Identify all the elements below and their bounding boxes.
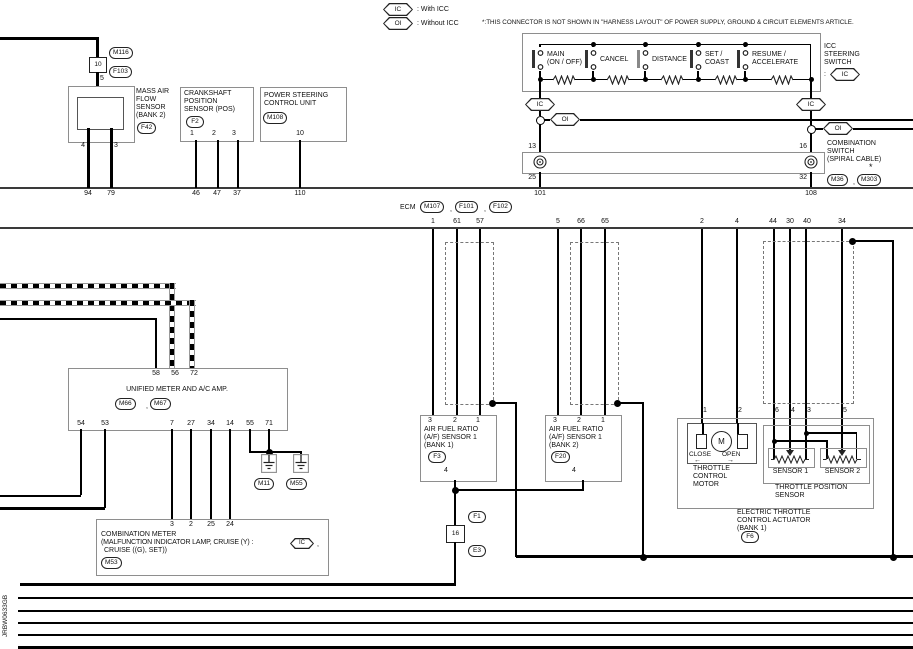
junction-dot	[743, 42, 748, 47]
connector-id: M11	[254, 478, 274, 490]
wire	[810, 44, 812, 80]
ecm-pin-number: 1	[424, 218, 442, 226]
wire	[249, 429, 251, 452]
wiper-arrow-icon	[786, 450, 794, 456]
legend-note: *:THIS CONNECTOR IS NOT SHOWN IN "HARNES…	[482, 19, 854, 27]
ecm-pin-number: 30	[781, 218, 799, 226]
can-line	[0, 300, 196, 306]
component-label: CRANKSHAFT	[184, 90, 231, 98]
icc-switch-title: STEERING	[824, 51, 860, 59]
wire	[0, 37, 98, 40]
pin-number: 71	[260, 420, 278, 428]
component-label: COMBINATION METER	[101, 531, 176, 539]
ecm-pin-number: 37	[228, 190, 246, 198]
connector-id: F6	[741, 531, 759, 543]
wire	[195, 140, 197, 188]
connector-id: F101	[455, 201, 478, 213]
comma: ,	[853, 179, 855, 187]
comma: ,	[146, 403, 148, 411]
comma: ,	[484, 206, 486, 214]
component-label: SENSOR	[136, 104, 166, 112]
wire	[557, 229, 559, 415]
pin-number: 2	[731, 407, 749, 415]
can-line	[169, 283, 175, 368]
wire	[810, 80, 813, 98]
wire	[0, 507, 105, 509]
component-label: POSITION	[184, 98, 217, 106]
component-label: MASS AIR	[136, 88, 169, 96]
bus-line	[18, 646, 913, 649]
component-label: (BANK 2)	[136, 112, 166, 120]
component-label: CONTROL UNIT	[264, 100, 316, 108]
component-label: MOTOR	[693, 481, 719, 489]
sensor2-label: SENSOR 2	[820, 468, 865, 476]
wire	[210, 429, 212, 519]
wire	[515, 402, 518, 558]
switch-label: COAST	[705, 59, 729, 67]
resistor-icon	[553, 75, 575, 85]
junction-dot	[696, 42, 701, 47]
asterisk-mark: *	[869, 163, 873, 171]
bus-line	[18, 622, 913, 625]
wire	[229, 429, 231, 519]
legend-ic-text: : With ICC	[417, 6, 449, 14]
component-label: (BANK 1)	[424, 442, 454, 450]
wire	[87, 128, 90, 188]
switch-icon	[736, 47, 752, 71]
connector-id: M303	[857, 174, 881, 186]
component-label: CRUISE ((G), SET))	[104, 547, 167, 555]
junction-dot	[452, 487, 459, 494]
switch-icon	[531, 47, 547, 71]
component-label: THROTTLE POSITION	[775, 484, 847, 492]
junction-dot	[489, 400, 496, 407]
wire	[155, 318, 157, 368]
component-label: AIR FUEL RATIO	[424, 426, 478, 434]
junction-dot	[591, 42, 596, 47]
junction-dot	[643, 42, 648, 47]
wire	[539, 124, 542, 153]
can-line	[189, 300, 195, 368]
oi-connector-icon: OI	[383, 17, 413, 30]
pin-number: 24	[221, 521, 239, 529]
wiper-arrow-icon	[838, 450, 846, 456]
pin-number: 3	[800, 407, 818, 415]
oi-connector-icon: OI	[550, 113, 580, 126]
connector-id: E3	[468, 545, 486, 557]
motor-brush	[737, 434, 748, 449]
junction-dot	[890, 554, 897, 561]
ecm-pin-number: 110	[291, 190, 309, 198]
can-line	[0, 283, 176, 289]
wire	[810, 172, 813, 188]
ic-connector-icon: IC	[525, 98, 555, 111]
bus-line	[18, 634, 913, 637]
switch-label: SET /	[705, 51, 722, 59]
wire	[217, 140, 219, 188]
junction-dot	[772, 439, 777, 444]
ecm-pin-number: 65	[596, 218, 614, 226]
maf-inner-box	[77, 97, 124, 130]
pin-number: 3	[114, 142, 118, 150]
pin-number: 2	[205, 130, 223, 138]
pin-number: 1	[594, 417, 612, 425]
inline-connector-box: 16	[446, 525, 465, 543]
wire	[701, 229, 703, 423]
motor-brush	[696, 434, 707, 449]
wire	[96, 72, 99, 86]
pin-number: 5	[100, 75, 104, 83]
wire	[516, 555, 913, 558]
icc-switch-title-sep: :	[824, 71, 826, 79]
arrow-right-icon: →	[727, 457, 734, 465]
component-label: SENSOR (POS)	[184, 106, 235, 114]
wire	[815, 128, 823, 130]
pin-number: 2	[182, 521, 200, 529]
pin-number: 27	[182, 420, 200, 428]
bus-line	[18, 597, 913, 600]
ecm-top-line	[0, 187, 913, 189]
connector-id: F20	[551, 451, 570, 463]
wire	[269, 451, 302, 453]
potentiometer-icon	[771, 455, 809, 464]
component-label: COMBINATION	[827, 140, 876, 148]
wire	[852, 240, 893, 243]
switch-label: MAIN	[547, 51, 565, 59]
wire	[642, 402, 645, 558]
pin-number: 7	[163, 420, 181, 428]
wire	[80, 429, 82, 495]
pin-number: 53	[96, 420, 114, 428]
connector-id: M55	[286, 478, 307, 490]
switch-label: RESUME /	[752, 51, 786, 59]
wire	[617, 402, 644, 405]
wire	[96, 37, 99, 58]
component-label: POWER STEERING	[264, 92, 328, 100]
icc-switch-title: SWITCH	[824, 59, 852, 67]
pin-number: 2	[570, 417, 588, 425]
component-label: CONTROL ACTUATOR	[737, 517, 810, 525]
pin-number: 4	[77, 142, 85, 150]
ic-connector-icon: IC	[830, 68, 860, 81]
icc-switch-title: ICC	[824, 43, 836, 51]
switch-icon	[584, 47, 600, 71]
ecm-pin-number: 2	[693, 218, 711, 226]
component-label: (A/F) SENSOR 1	[549, 434, 602, 442]
ic-connector-icon: IC	[796, 98, 826, 111]
pin-number: 4	[572, 467, 576, 475]
connector-id: F3	[428, 451, 446, 463]
connector-id: M66	[115, 398, 136, 410]
switch-icon	[689, 47, 705, 71]
ecm-pin-number: 57	[471, 218, 489, 226]
pin-number: 1	[183, 130, 201, 138]
pin-number: 32	[795, 174, 807, 182]
component-label: FLOW	[136, 96, 156, 104]
component-label: SWITCH	[827, 148, 855, 156]
wire	[455, 489, 584, 492]
wire	[539, 80, 542, 98]
wire	[0, 495, 81, 497]
connector-id: M53	[101, 557, 122, 569]
connector-id: F102	[489, 201, 512, 213]
pin-number: 34	[202, 420, 220, 428]
spiral-cable-icon	[804, 155, 818, 169]
junction-dot	[804, 431, 809, 436]
pin-number: 58	[147, 370, 165, 378]
wire	[432, 229, 434, 415]
potentiometer-icon	[823, 455, 861, 464]
component-label: (SPIRAL CABLE)	[827, 156, 881, 164]
ground-icon	[293, 454, 309, 473]
connector-id: M107	[420, 201, 444, 213]
connector-id: M36	[827, 174, 848, 186]
pin-number: 16	[795, 143, 807, 151]
pin-number: 5	[836, 407, 854, 415]
component-label: AIR FUEL RATIO	[549, 426, 603, 434]
comma: ,	[450, 206, 452, 214]
component-label: THROTTLE	[693, 465, 730, 473]
ecm-pin-number: 79	[102, 190, 120, 198]
resistor-icon	[607, 75, 629, 85]
shield-box	[570, 242, 619, 405]
spiral-cable-box	[522, 152, 825, 174]
connector-id: F42	[137, 122, 156, 134]
wire	[892, 240, 895, 557]
component-label: ELECTRIC THROTTLE	[737, 509, 810, 517]
wire	[171, 429, 173, 519]
arrow-left-icon: ←	[694, 457, 701, 465]
junction-dot	[640, 554, 647, 561]
wire	[853, 128, 913, 130]
wire	[104, 429, 106, 508]
ecm-pin-number: 66	[572, 218, 590, 226]
pin-number: 3	[546, 417, 564, 425]
wire	[0, 318, 157, 320]
junction-dot	[643, 77, 648, 82]
wire	[110, 128, 113, 188]
ecm-pin-number: 101	[531, 190, 549, 198]
drawing-code: JRBW0633GB	[2, 582, 10, 649]
ecm-pin-number: 94	[79, 190, 97, 198]
splice-node	[807, 125, 816, 134]
ecm-pin-number: 40	[798, 218, 816, 226]
ground-icon	[261, 454, 277, 473]
ecm-pin-number: 4	[728, 218, 746, 226]
wire	[492, 402, 517, 405]
component-label: CONTROL	[693, 473, 727, 481]
spiral-cable-icon	[533, 155, 547, 169]
wire	[454, 542, 457, 584]
pin-number: 2	[446, 417, 464, 425]
wire	[810, 111, 813, 125]
shield-box	[445, 242, 494, 405]
wire	[580, 119, 913, 121]
resistor-icon	[661, 75, 683, 85]
switch-label: DISTANCE	[652, 56, 687, 64]
resistor-icon	[771, 75, 793, 85]
component-label: SENSOR	[775, 492, 805, 500]
wire	[20, 583, 456, 586]
sensor1-label: SENSOR 1	[768, 468, 813, 476]
resistor-icon	[715, 75, 737, 85]
ecm-label: ECM	[400, 204, 416, 212]
connector-id: M116	[109, 47, 133, 59]
switch-label: CANCEL	[600, 56, 628, 64]
bus-line	[18, 610, 913, 613]
wire	[299, 140, 301, 188]
wiring-diagram: IC : With ICC OI : Without ICC *:THIS CO…	[0, 0, 913, 649]
shield-box	[763, 241, 854, 404]
connector-id: F103	[109, 66, 132, 78]
ecm-pin-number: 47	[208, 190, 226, 198]
pin-number: 3	[225, 130, 243, 138]
pin-number: 56	[166, 370, 184, 378]
connector-id: M108	[263, 112, 287, 124]
ecm-pin-number: 108	[802, 190, 820, 198]
ecm-pin-number: 5	[549, 218, 567, 226]
comma: ,	[317, 541, 319, 549]
ecm-pin-number: 34	[833, 218, 851, 226]
legend-oi-text: : Without ICC	[417, 20, 459, 28]
component-label: UNIFIED METER AND A/C AMP.	[68, 386, 286, 394]
component-label: (MALFUNCTION INDICATOR LAMP, CRUISE (Y) …	[101, 539, 253, 547]
junction-dot	[696, 77, 701, 82]
junction-dot	[614, 400, 621, 407]
connector-id: F2	[186, 116, 204, 128]
splice-node	[536, 116, 545, 125]
junction-dot	[743, 77, 748, 82]
connector-id: F1	[468, 511, 486, 523]
wire	[539, 172, 542, 188]
pin-number: 3	[163, 521, 181, 529]
wire	[702, 423, 704, 434]
wire	[237, 140, 239, 188]
ecm-pin-number: 61	[448, 218, 466, 226]
ic-connector-icon: IC	[290, 538, 314, 549]
component-label: (BANK 2)	[549, 442, 579, 450]
wire	[806, 432, 857, 434]
pin-number: 4	[444, 467, 448, 475]
pin-number: 55	[241, 420, 259, 428]
pin-number: 3	[421, 417, 439, 425]
oi-connector-icon: OI	[823, 122, 853, 135]
pin-number: 54	[72, 420, 90, 428]
ecm-pin-number: 46	[187, 190, 205, 198]
pin-number: 25	[202, 521, 220, 529]
connector-id: M67	[150, 398, 171, 410]
motor-icon: M	[711, 431, 732, 452]
pin-number: 13	[524, 143, 536, 151]
pin-number: 10	[291, 130, 309, 138]
pin-number: 72	[185, 370, 203, 378]
inline-connector-box: 10	[89, 57, 107, 73]
ic-connector-icon: IC	[383, 3, 413, 16]
junction-dot	[591, 77, 596, 82]
switch-icon	[636, 47, 652, 71]
pin-number: 1	[696, 407, 714, 415]
wire	[190, 429, 192, 519]
wire	[810, 133, 813, 153]
ecm-pin-number: 44	[764, 218, 782, 226]
component-label: (A/F) SENSOR 1	[424, 434, 477, 442]
switch-label: (ON / OFF)	[547, 59, 582, 67]
wire	[774, 440, 827, 442]
pin-number: 1	[469, 417, 487, 425]
junction-dot	[849, 238, 856, 245]
wire	[736, 229, 738, 423]
wire	[737, 423, 739, 434]
pin-number: 25	[524, 174, 536, 182]
pin-number: 14	[221, 420, 239, 428]
switch-label: ACCELERATE	[752, 59, 798, 67]
wire	[540, 44, 811, 45]
